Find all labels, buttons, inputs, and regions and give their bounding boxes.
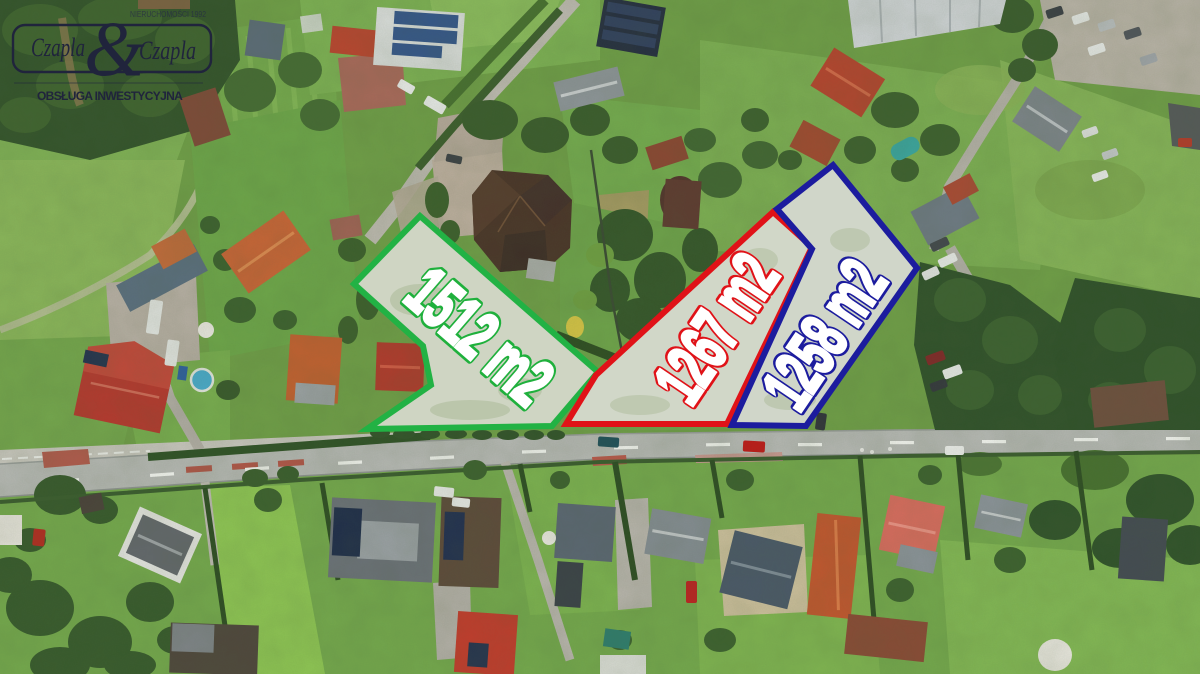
svg-text:Czapla: Czapla	[31, 33, 85, 62]
svg-text:OBSŁUGA INWESTYCYJNA: OBSŁUGA INWESTYCYJNA	[37, 89, 185, 103]
svg-text:&: &	[84, 5, 145, 92]
svg-text:Czapla: Czapla	[139, 36, 196, 65]
